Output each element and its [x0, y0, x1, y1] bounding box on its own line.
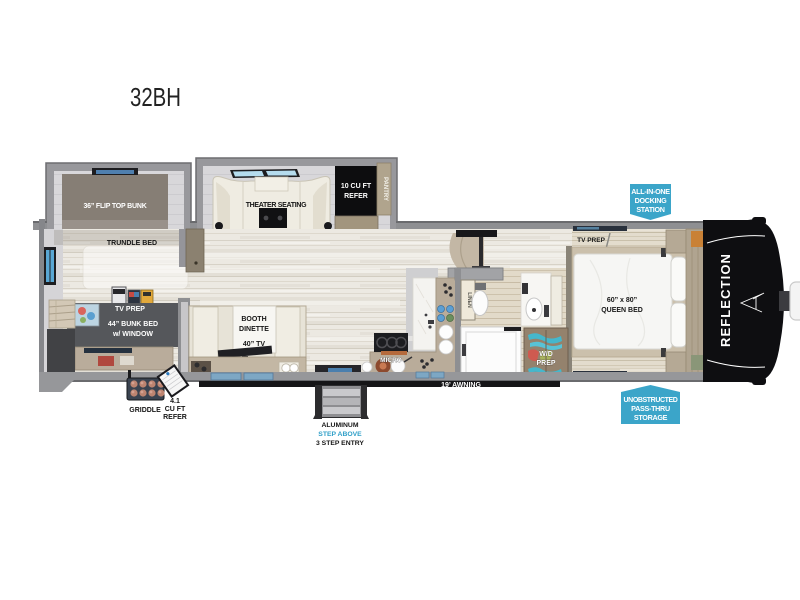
svg-text:W/D: W/D	[539, 351, 553, 358]
svg-text:TV PREP: TV PREP	[115, 306, 145, 313]
svg-text:REFER: REFER	[344, 193, 368, 200]
svg-text:STATION: STATION	[636, 205, 664, 214]
svg-text:44” BUNK BED: 44” BUNK BED	[108, 321, 158, 328]
svg-text:LINEN: LINEN	[466, 292, 472, 308]
svg-text:CU FT: CU FT	[165, 406, 186, 413]
svg-text:THEATER SEATING: THEATER SEATING	[246, 202, 307, 209]
svg-text:DOCKING: DOCKING	[635, 196, 668, 205]
svg-text:4.1: 4.1	[170, 398, 180, 405]
svg-text:10 CU FT: 10 CU FT	[341, 183, 372, 190]
svg-text:GRIDDLE: GRIDDLE	[129, 407, 161, 414]
svg-text:STEP ABOVE: STEP ABOVE	[318, 431, 362, 438]
svg-text:PANTRY: PANTRY	[382, 177, 388, 201]
svg-text:w/ WINDOW: w/ WINDOW	[112, 331, 153, 338]
svg-text:MICRO: MICRO	[380, 357, 402, 364]
svg-text:TV PREP: TV PREP	[577, 237, 605, 244]
svg-text:36” FLIP TOP BUNK: 36” FLIP TOP BUNK	[83, 203, 146, 210]
svg-text:REFLECTION: REFLECTION	[718, 253, 733, 347]
svg-text:UNOBSTRUCTED: UNOBSTRUCTED	[624, 397, 678, 404]
svg-text:REFER: REFER	[163, 414, 187, 421]
svg-text:ALUMINUM: ALUMINUM	[322, 422, 359, 429]
svg-text:60” x 80”: 60” x 80”	[607, 297, 637, 304]
svg-text:ALL-IN-ONE: ALL-IN-ONE	[631, 187, 670, 196]
svg-text:32BH: 32BH	[130, 82, 181, 112]
svg-text:QUEEN BED: QUEEN BED	[601, 307, 643, 314]
svg-text:DINETTE: DINETTE	[239, 326, 269, 333]
svg-text:3 STEP ENTRY: 3 STEP ENTRY	[316, 440, 364, 447]
svg-text:PREP: PREP	[536, 360, 555, 367]
svg-text:STORAGE: STORAGE	[634, 413, 668, 422]
svg-text:PASS-THRU: PASS-THRU	[631, 404, 670, 413]
svg-text:BOOTH: BOOTH	[241, 316, 266, 323]
svg-text:19’ AWNING: 19’ AWNING	[441, 382, 481, 389]
